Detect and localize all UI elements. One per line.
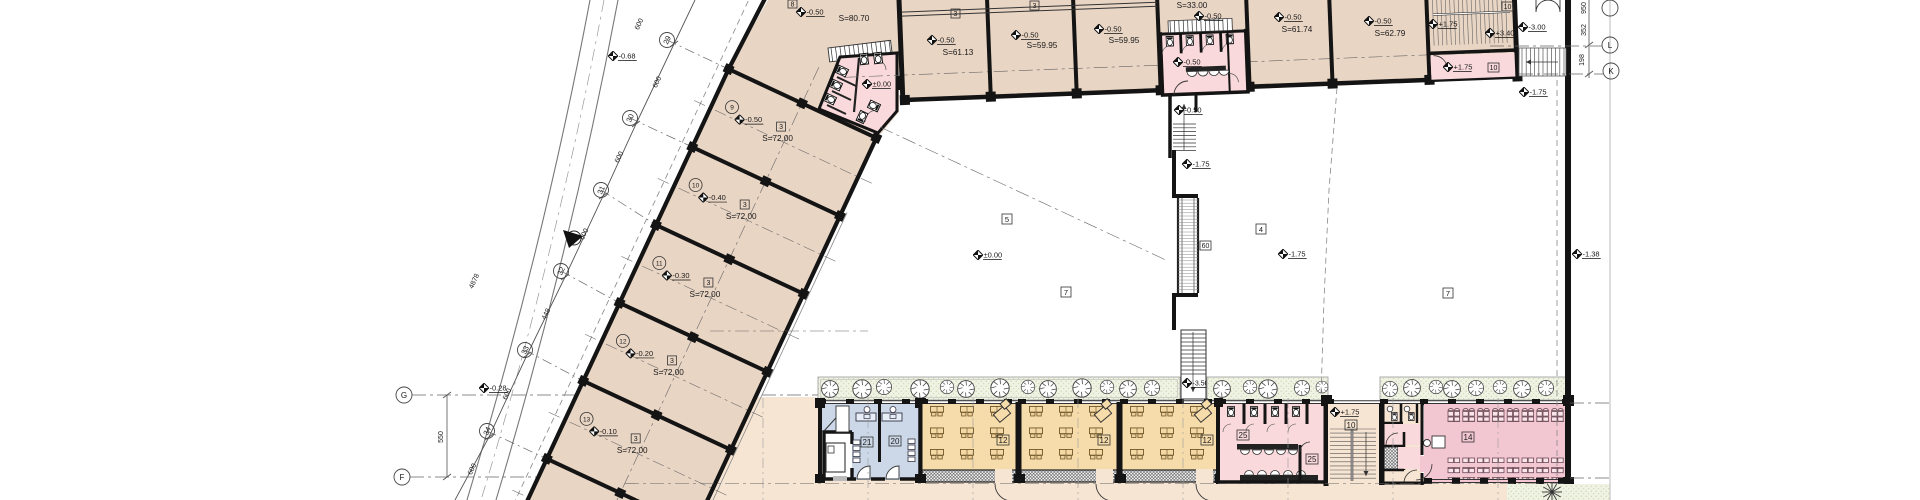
svg-text:S=59.95: S=59.95: [1027, 41, 1058, 50]
svg-text:10: 10: [692, 183, 700, 190]
svg-text:-0.50: -0.50: [745, 115, 762, 124]
svg-text:3: 3: [670, 358, 674, 365]
svg-text:3: 3: [1033, 3, 1037, 10]
svg-text:12: 12: [1203, 436, 1212, 445]
svg-text:K: K: [1608, 67, 1614, 76]
svg-text:8: 8: [791, 2, 795, 9]
svg-text:-3.00: -3.00: [1529, 23, 1546, 32]
svg-text:-0.50: -0.50: [1375, 17, 1392, 26]
svg-text:14: 14: [1464, 433, 1473, 442]
svg-text:-1.38: -1.38: [1583, 250, 1600, 259]
svg-text:S=33.00: S=33.00: [1177, 1, 1208, 10]
svg-text:-1.75: -1.75: [1530, 88, 1547, 97]
svg-text:S=72.00: S=72.00: [762, 134, 793, 143]
svg-text:S=72.00: S=72.00: [726, 212, 757, 221]
svg-text:F: F: [400, 473, 405, 482]
svg-text:10: 10: [1347, 421, 1356, 430]
svg-text:3: 3: [779, 124, 783, 131]
svg-text:25: 25: [1239, 431, 1248, 440]
svg-text:-3.50: -3.50: [1193, 381, 1209, 388]
svg-text:±0.00: ±0.00: [873, 80, 892, 89]
svg-text:-0.50: -0.50: [1285, 13, 1302, 22]
svg-text:950: 950: [1581, 2, 1588, 14]
svg-text:-0.30: -0.30: [672, 271, 689, 280]
svg-text:12: 12: [1100, 436, 1109, 445]
svg-text:9: 9: [730, 105, 734, 112]
svg-text:S=72.00: S=72.00: [690, 290, 721, 299]
svg-text:7: 7: [1446, 289, 1450, 298]
svg-text:5: 5: [1005, 215, 1009, 224]
svg-text:-0.50: -0.50: [1105, 25, 1122, 34]
svg-text:352: 352: [1581, 24, 1588, 36]
svg-text:-0.20: -0.20: [636, 349, 653, 358]
svg-text:60: 60: [1202, 243, 1210, 250]
svg-text:3: 3: [634, 436, 638, 443]
svg-text:±0.00: ±0.00: [984, 251, 1003, 260]
svg-text:S=80.70: S=80.70: [839, 14, 870, 23]
svg-text:S=59.95: S=59.95: [1109, 36, 1140, 45]
svg-text:-0.68: -0.68: [619, 52, 636, 61]
svg-text:3: 3: [706, 280, 710, 287]
svg-text:-0.50: -0.50: [1205, 12, 1222, 21]
svg-text:S=72.00: S=72.00: [653, 368, 684, 377]
svg-text:-1.75: -1.75: [1289, 250, 1306, 259]
svg-text:25: 25: [1308, 455, 1317, 464]
svg-text:S=62.79: S=62.79: [1375, 29, 1406, 38]
svg-text:10: 10: [1504, 4, 1512, 11]
svg-text:198: 198: [1579, 54, 1586, 66]
svg-text:-0.50: -0.50: [807, 8, 824, 17]
svg-text:-0.10: -0.10: [600, 427, 617, 436]
svg-text:S=61.74: S=61.74: [1282, 25, 1313, 34]
svg-text:10: 10: [1490, 65, 1498, 72]
svg-text:-0.40: -0.40: [709, 193, 726, 202]
svg-text:-0.50: -0.50: [1184, 58, 1201, 67]
svg-text:20: 20: [891, 437, 900, 446]
svg-text:12: 12: [619, 338, 627, 345]
svg-text:3: 3: [954, 11, 958, 18]
svg-text:-1.75: -1.75: [1193, 160, 1210, 169]
svg-text:+3.40: +3.40: [1496, 29, 1515, 38]
svg-text:-0.50: -0.50: [1185, 106, 1202, 115]
svg-text:550: 550: [438, 431, 445, 443]
svg-text:21: 21: [863, 438, 872, 447]
svg-text:+1.75: +1.75: [1439, 20, 1458, 29]
svg-text:S=61.13: S=61.13: [943, 48, 974, 57]
svg-text:-0.50: -0.50: [938, 36, 955, 45]
svg-text:G: G: [401, 391, 407, 400]
svg-text:-0.28: -0.28: [490, 384, 507, 393]
svg-text:13: 13: [583, 416, 591, 423]
svg-text:-0.50: -0.50: [1022, 31, 1039, 40]
svg-text:L: L: [1608, 41, 1613, 50]
svg-text:+1.75: +1.75: [1341, 408, 1360, 417]
svg-text:11: 11: [656, 261, 663, 268]
svg-text:12: 12: [999, 436, 1008, 445]
svg-text:4: 4: [1259, 225, 1263, 234]
svg-text:S=72.00: S=72.00: [617, 446, 648, 455]
svg-text:+1.75: +1.75: [1454, 63, 1473, 72]
svg-text:7: 7: [1064, 288, 1068, 297]
svg-text:3: 3: [743, 202, 747, 209]
